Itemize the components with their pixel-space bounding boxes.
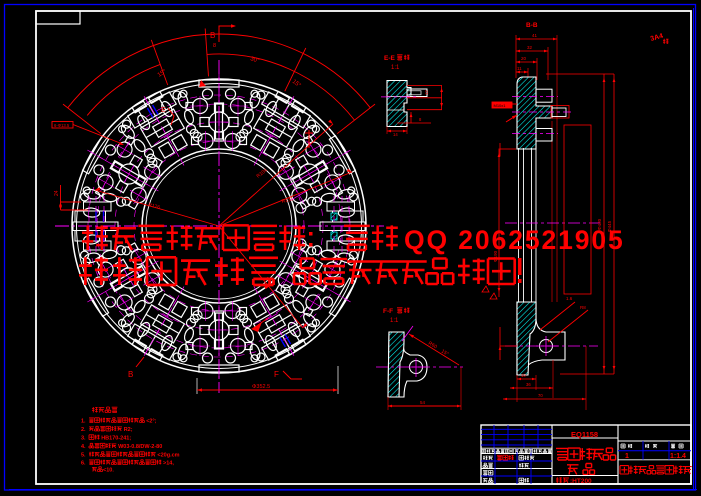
svg-text:4.: 4.	[81, 444, 86, 450]
svg-text:12: 12	[424, 90, 429, 95]
svg-text:20: 20	[521, 56, 527, 61]
svg-text:14: 14	[393, 132, 398, 137]
svg-text:<10.: <10.	[103, 468, 114, 474]
svg-text:2.: 2.	[81, 427, 86, 433]
svg-text:E-E: E-E	[384, 55, 396, 62]
svg-text:1:1: 1:1	[391, 65, 400, 71]
svg-text:R8: R8	[580, 305, 586, 310]
svg-text:>14,: >14,	[163, 461, 174, 467]
svg-text:HB170-241;: HB170-241;	[101, 436, 131, 442]
svg-text:M10x1: M10x1	[494, 103, 507, 108]
svg-text:3.: 3.	[81, 436, 86, 442]
svg-text:E: E	[161, 107, 166, 114]
svg-text:1: 1	[625, 453, 629, 460]
svg-text:5.: 5.	[81, 453, 86, 459]
svg-text:<2°;: <2°;	[146, 419, 156, 425]
svg-text:54: 54	[420, 400, 426, 405]
svg-text:B: B	[210, 31, 215, 40]
svg-text:41: 41	[532, 33, 538, 38]
svg-text:24: 24	[54, 190, 60, 196]
svg-text:19: 19	[521, 373, 526, 378]
svg-text:6-Φ13.5: 6-Φ13.5	[54, 123, 70, 128]
svg-text:6.: 6.	[81, 461, 86, 467]
svg-text:36: 36	[526, 382, 531, 387]
svg-text:B-B: B-B	[526, 22, 538, 29]
svg-text:1:1: 1:1	[390, 318, 399, 324]
svg-text:<20g.cm: <20g.cm	[157, 453, 179, 459]
svg-text:1:1.4: 1:1.4	[670, 453, 686, 460]
svg-text:QQ 2062521905: QQ 2062521905	[404, 225, 625, 255]
svg-text:32: 32	[527, 45, 533, 50]
svg-text:1.6: 1.6	[566, 296, 573, 301]
svg-text::HT200: :HT200	[570, 478, 592, 485]
svg-text:8: 8	[213, 43, 216, 49]
svg-text:W03-0.8/DW-2-80: W03-0.8/DW-2-80	[118, 444, 162, 450]
svg-text:1.: 1.	[81, 419, 86, 425]
svg-text:F-F: F-F	[383, 308, 393, 315]
svg-text:Φ352.5: Φ352.5	[252, 384, 270, 390]
svg-text:F: F	[274, 370, 279, 379]
svg-text:EQ1158: EQ1158	[571, 430, 598, 439]
svg-text:11: 11	[517, 66, 522, 71]
svg-text:70: 70	[538, 393, 543, 398]
svg-text:B: B	[128, 370, 133, 379]
svg-text:R2;: R2;	[124, 427, 133, 433]
